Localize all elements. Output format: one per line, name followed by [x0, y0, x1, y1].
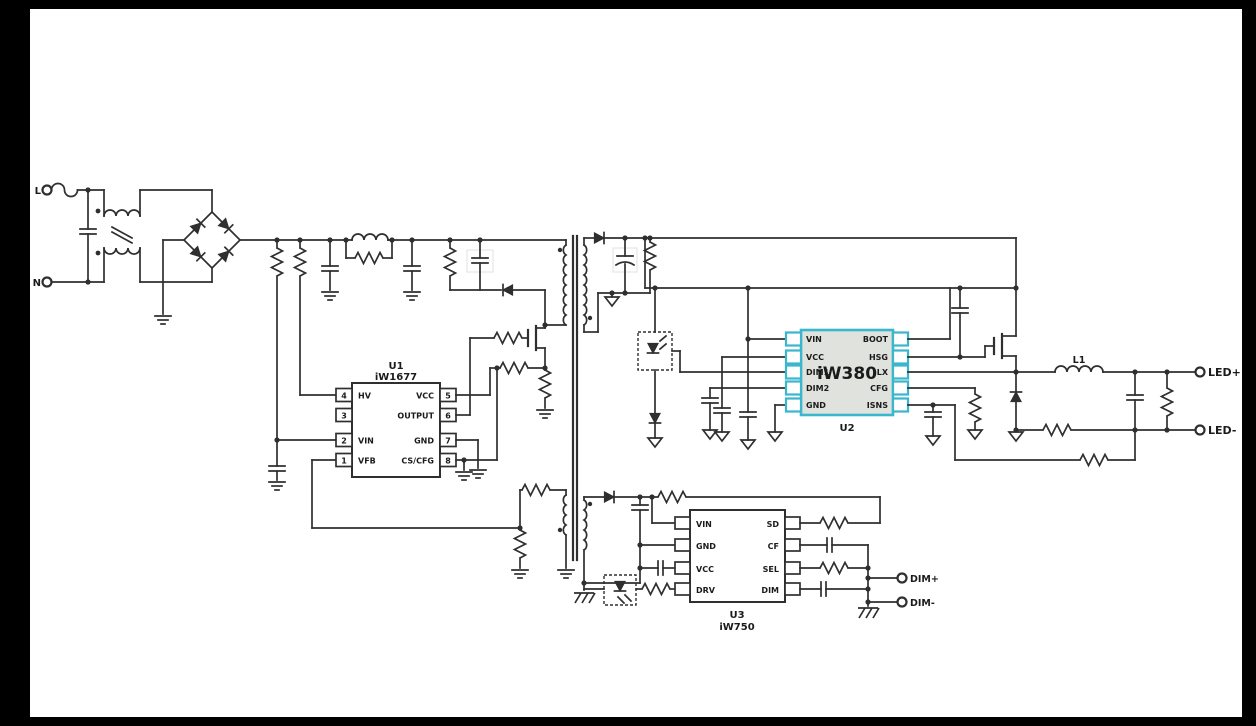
led-minus-terminal [1196, 426, 1205, 435]
dim-plus-terminal [898, 574, 907, 583]
u3-pin-label: GND [696, 542, 716, 551]
u2-pin-label: GND [806, 401, 826, 410]
u3-pin-label: SD [767, 520, 780, 529]
u1-pin-num: 6 [445, 412, 451, 421]
led-minus-label: LED- [1208, 424, 1236, 437]
neutral-terminal-label: N [33, 278, 41, 289]
u1-pin-num: 4 [341, 392, 347, 401]
page-margin-left [0, 0, 30, 726]
u1-pin-num: 8 [445, 457, 451, 466]
schematic-page: L N [0, 0, 1256, 726]
u3-pin-label: SEL [763, 565, 779, 574]
dim-minus-label: DIM- [910, 598, 935, 609]
page-margin-bottom [0, 717, 1256, 726]
page-margin-top [0, 0, 1256, 9]
u2-pin-label: HSG [869, 353, 888, 362]
page-margin-right [1242, 0, 1256, 726]
u1-part: iW1677 [375, 372, 417, 383]
neutral-terminal [43, 278, 52, 287]
u1-pin-num: 5 [445, 392, 451, 401]
u1-pin-label: CS/CFG [401, 457, 434, 466]
u1-pin-num: 2 [341, 437, 347, 446]
u1-pin-label: VFB [358, 457, 376, 466]
u1-pin-label: HV [358, 392, 372, 401]
u2-pin-label: ISNS [867, 401, 888, 410]
u3-pin-label: DIM [761, 586, 779, 595]
u2-pin-label: BOOT [863, 335, 889, 344]
inductor-label: L1 [1073, 355, 1086, 366]
dim-minus-terminal [898, 598, 907, 607]
u1-pin-num: 3 [341, 412, 347, 421]
u3-pin-label: VIN [696, 520, 712, 529]
u1-pin-label: VCC [416, 392, 434, 401]
u1-pin-label: VIN [358, 437, 374, 446]
u2-pin-label: DIM1 [806, 368, 830, 377]
u3-pin-label: VCC [696, 565, 714, 574]
u1-pin-label: OUTPUT [397, 412, 434, 421]
u1-pin-label: GND [414, 437, 434, 446]
u1-ref: U1 [388, 361, 403, 372]
u2-pin-label: CFG [870, 384, 888, 393]
led-plus-terminal [1196, 368, 1205, 377]
u3-pin-label: DRV [696, 586, 716, 595]
u2-ref: U2 [839, 423, 854, 434]
led-plus-label: LED+ [1208, 366, 1241, 379]
line-terminal-label: L [35, 186, 42, 197]
u2-pin-label: VCC [806, 353, 824, 362]
u2-pin-label: LX [877, 368, 889, 377]
dim-plus-label: DIM+ [910, 574, 939, 585]
line-terminal [43, 186, 52, 195]
u3-part: iW750 [719, 622, 754, 633]
u1-pin-num: 1 [341, 457, 347, 466]
u2-pin-label: VIN [806, 335, 822, 344]
u3-pin-label: CF [768, 542, 779, 551]
u3-ref: U3 [729, 610, 744, 621]
u2-pin-label: DIM2 [806, 384, 829, 393]
u1-pin-num: 7 [445, 437, 451, 446]
sheet [30, 9, 1242, 717]
led-driver-schematic: L N [0, 0, 1256, 726]
